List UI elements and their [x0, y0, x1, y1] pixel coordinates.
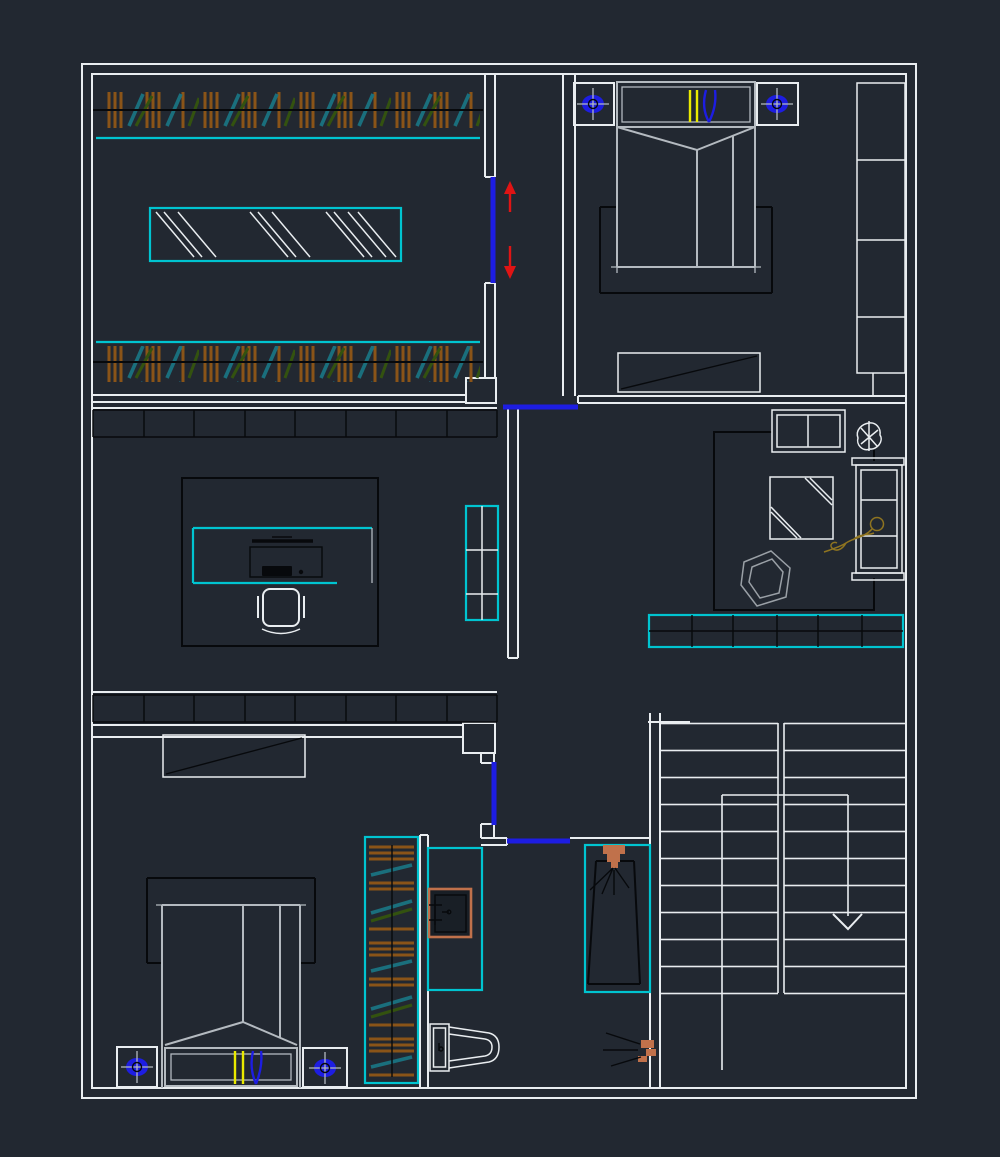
- washbasin[interactable]: [429, 889, 471, 937]
- wall-pillar-bottom: [463, 723, 495, 753]
- stair-treads-left: [659, 722, 778, 995]
- stair-treads-right: [784, 722, 905, 995]
- keyboard-icon: [262, 566, 292, 576]
- cad-canvas[interactable]: [0, 0, 1000, 1157]
- floor-plan-svg: [0, 0, 1000, 1157]
- wardrobe-strip[interactable]: [365, 837, 418, 1083]
- clothes-rail-hatch-bottom: [103, 346, 480, 382]
- mouse-icon: [299, 570, 303, 574]
